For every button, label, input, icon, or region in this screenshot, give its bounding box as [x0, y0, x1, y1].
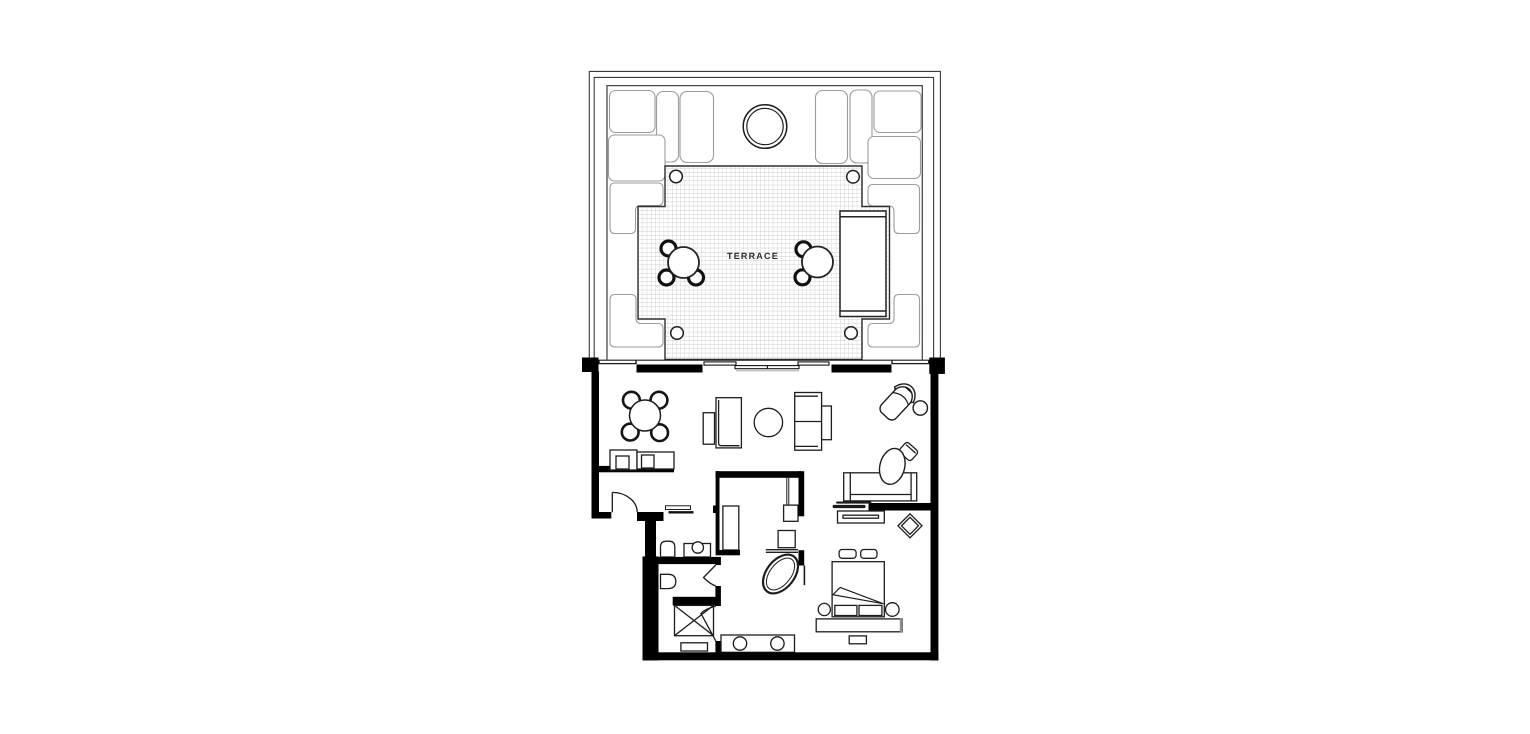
svg-text:TERRACE: TERRACE: [727, 251, 779, 261]
